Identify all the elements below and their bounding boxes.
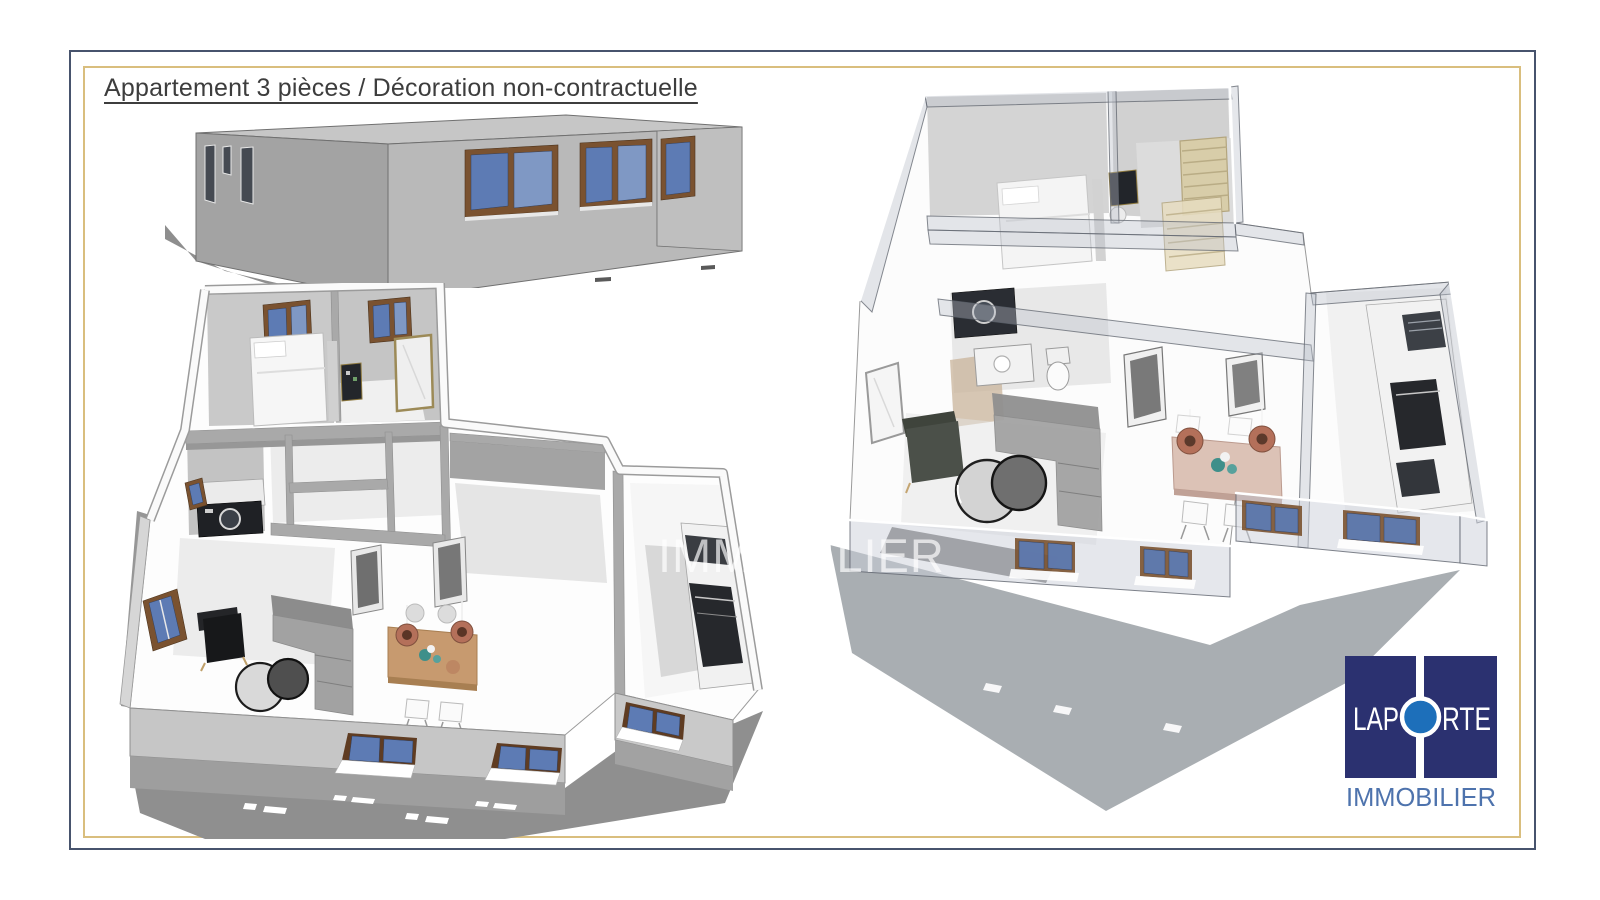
facade-window [465,145,558,221]
facade-window [580,139,652,211]
wall-panel [341,363,362,401]
open-casement-window [1124,347,1166,427]
mirror-door [395,335,433,411]
logo-wordmark-right: RTE [1442,701,1491,737]
logo-tagline: IMMOBILIER [1346,782,1496,812]
toilet [1046,347,1070,390]
wall-mirror [866,363,904,443]
bathroom-vanity [974,344,1034,386]
open-casement-window [433,537,467,607]
front-window [335,733,417,778]
page-title: Appartement 3 pièces / Décoration non-co… [104,74,698,103]
open-casement-window [1226,353,1265,416]
logo-wordmark-left: LAP [1353,701,1399,737]
open-casement-window [351,545,383,615]
solid-floorplan-view [85,283,770,843]
laporte-logo: LAP RTE IMMOBILIER [1345,656,1497,814]
exterior-building-view [165,103,750,288]
page: Appartement 3 pièces / Décoration non-co… [0,0,1600,900]
front-window [485,743,562,785]
logo-o-circle [1402,699,1439,736]
facade-window [661,136,695,200]
bedroom-window [368,297,412,343]
